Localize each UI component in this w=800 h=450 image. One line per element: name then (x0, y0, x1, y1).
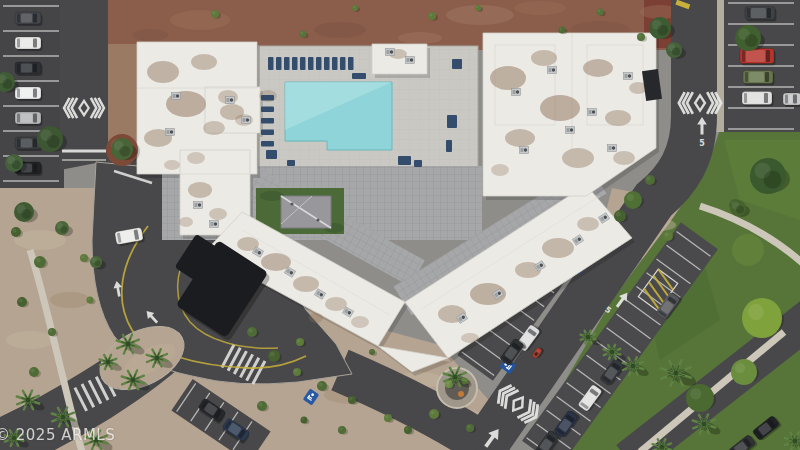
roof-stain (461, 333, 479, 343)
rooftop-ac-unit (386, 49, 395, 56)
rooftop-ac-unit (520, 147, 529, 154)
rooftop-ac-unit (210, 221, 219, 228)
roof-stain (203, 121, 225, 135)
car (743, 71, 775, 86)
rooftop-ac-unit (588, 109, 597, 116)
car (745, 7, 777, 22)
aerial-photo-canvas: 55 (0, 0, 800, 450)
pool-house (372, 44, 427, 74)
pool-lounger (316, 57, 322, 70)
pool-lounger (447, 115, 457, 128)
pool-lounger (266, 150, 277, 159)
roof-stain (187, 152, 205, 164)
aerial-photo: 55 (0, 0, 800, 450)
rooftop-ac-unit (608, 145, 617, 152)
roof-stain (540, 95, 580, 121)
pool-lounger (268, 57, 274, 70)
roof-stain (188, 182, 212, 198)
watermark: © 2025 ARMLS (0, 426, 115, 444)
rooftop-ac-unit (512, 89, 521, 96)
roof-stain (605, 110, 631, 126)
pool-lounger (261, 130, 274, 136)
roof-stain (293, 276, 319, 292)
pool-lounger (348, 57, 354, 70)
car (740, 49, 776, 66)
roof-stain (179, 217, 193, 227)
roof-stain (261, 253, 291, 271)
roof-stain (505, 129, 535, 147)
roof-stain (613, 151, 635, 165)
rooftop-ac-unit (242, 117, 251, 124)
pool-lounger (261, 141, 274, 147)
pool-lounger (300, 57, 306, 70)
roof-stain (491, 164, 509, 176)
roof-stain (531, 50, 557, 66)
pool-lounger (446, 140, 452, 152)
roof-stain (542, 238, 574, 258)
pool-lounger (452, 59, 462, 69)
roof-stain (191, 54, 217, 70)
speed-limit-text: 5 (699, 139, 705, 148)
car (783, 93, 800, 107)
pool-lounger (332, 57, 338, 70)
roof-stain (490, 66, 526, 90)
pool-lounger (261, 118, 274, 124)
pool-lounger (292, 57, 298, 70)
rooftop-ac-unit (566, 127, 575, 134)
car (15, 62, 43, 76)
car (15, 112, 43, 126)
car (15, 37, 43, 51)
pool-lounger (284, 57, 290, 70)
car (15, 87, 43, 101)
pool-lounger (414, 160, 422, 167)
road-west (60, 0, 108, 154)
pool-lounger (276, 57, 282, 70)
rooftop-ac-unit (548, 67, 557, 74)
roof-stain (583, 59, 613, 77)
roof-stain (577, 217, 599, 231)
pool-lounger (308, 57, 314, 70)
rooftop-ac-unit (406, 57, 415, 64)
pool-lounger (261, 95, 274, 101)
rooftop-ac-unit (166, 129, 175, 136)
pool-lounger (352, 73, 366, 79)
pool-lounger (261, 107, 274, 113)
roof-stain (164, 160, 180, 170)
roof-stain (351, 316, 369, 328)
rooftop-ac-unit (172, 93, 181, 100)
roof-stain (325, 297, 347, 311)
pool-lounger (340, 57, 346, 70)
rooftop-ac-unit (194, 202, 203, 209)
roof-stain (562, 148, 594, 168)
pool-lounger (398, 156, 411, 165)
car (742, 92, 774, 107)
rooftop-ac-unit (624, 73, 633, 80)
roof-stain (147, 61, 179, 83)
pool-lounger (324, 57, 330, 70)
pool-lounger (287, 160, 295, 166)
car (15, 12, 43, 26)
rooftop-ac-unit (226, 97, 235, 104)
roof-stain (309, 313, 323, 323)
roof-stain (209, 208, 227, 220)
